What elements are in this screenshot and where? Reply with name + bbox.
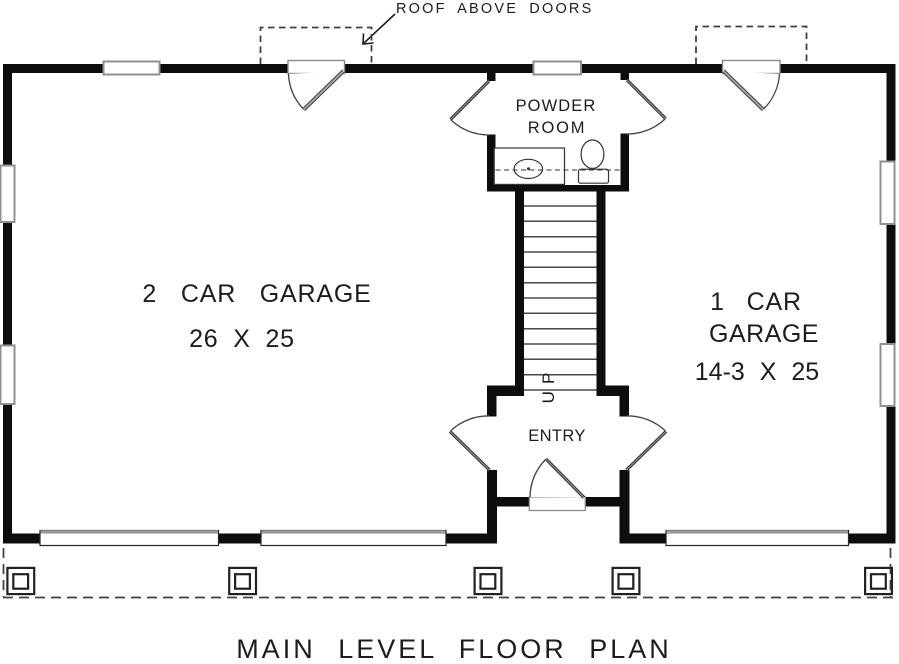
svg-text:MAIN LEVEL FLOOR PLAN: MAIN LEVEL FLOOR PLAN	[236, 634, 672, 664]
svg-text:14-3 X 25: 14-3 X 25	[695, 358, 819, 386]
svg-text:POWDER: POWDER	[516, 97, 597, 115]
svg-text:26 X 25: 26 X 25	[189, 325, 295, 353]
svg-text:GARAGE: GARAGE	[709, 320, 819, 348]
svg-text:UP: UP	[539, 366, 558, 404]
svg-text:1 CAR: 1 CAR	[710, 288, 802, 316]
svg-text:ENTRY: ENTRY	[528, 427, 586, 445]
svg-text:2 CAR GARAGE: 2 CAR GARAGE	[142, 280, 371, 308]
svg-text:ROOM: ROOM	[528, 119, 587, 137]
svg-text:ROOF ABOVE DOORS: ROOF ABOVE DOORS	[396, 1, 593, 17]
